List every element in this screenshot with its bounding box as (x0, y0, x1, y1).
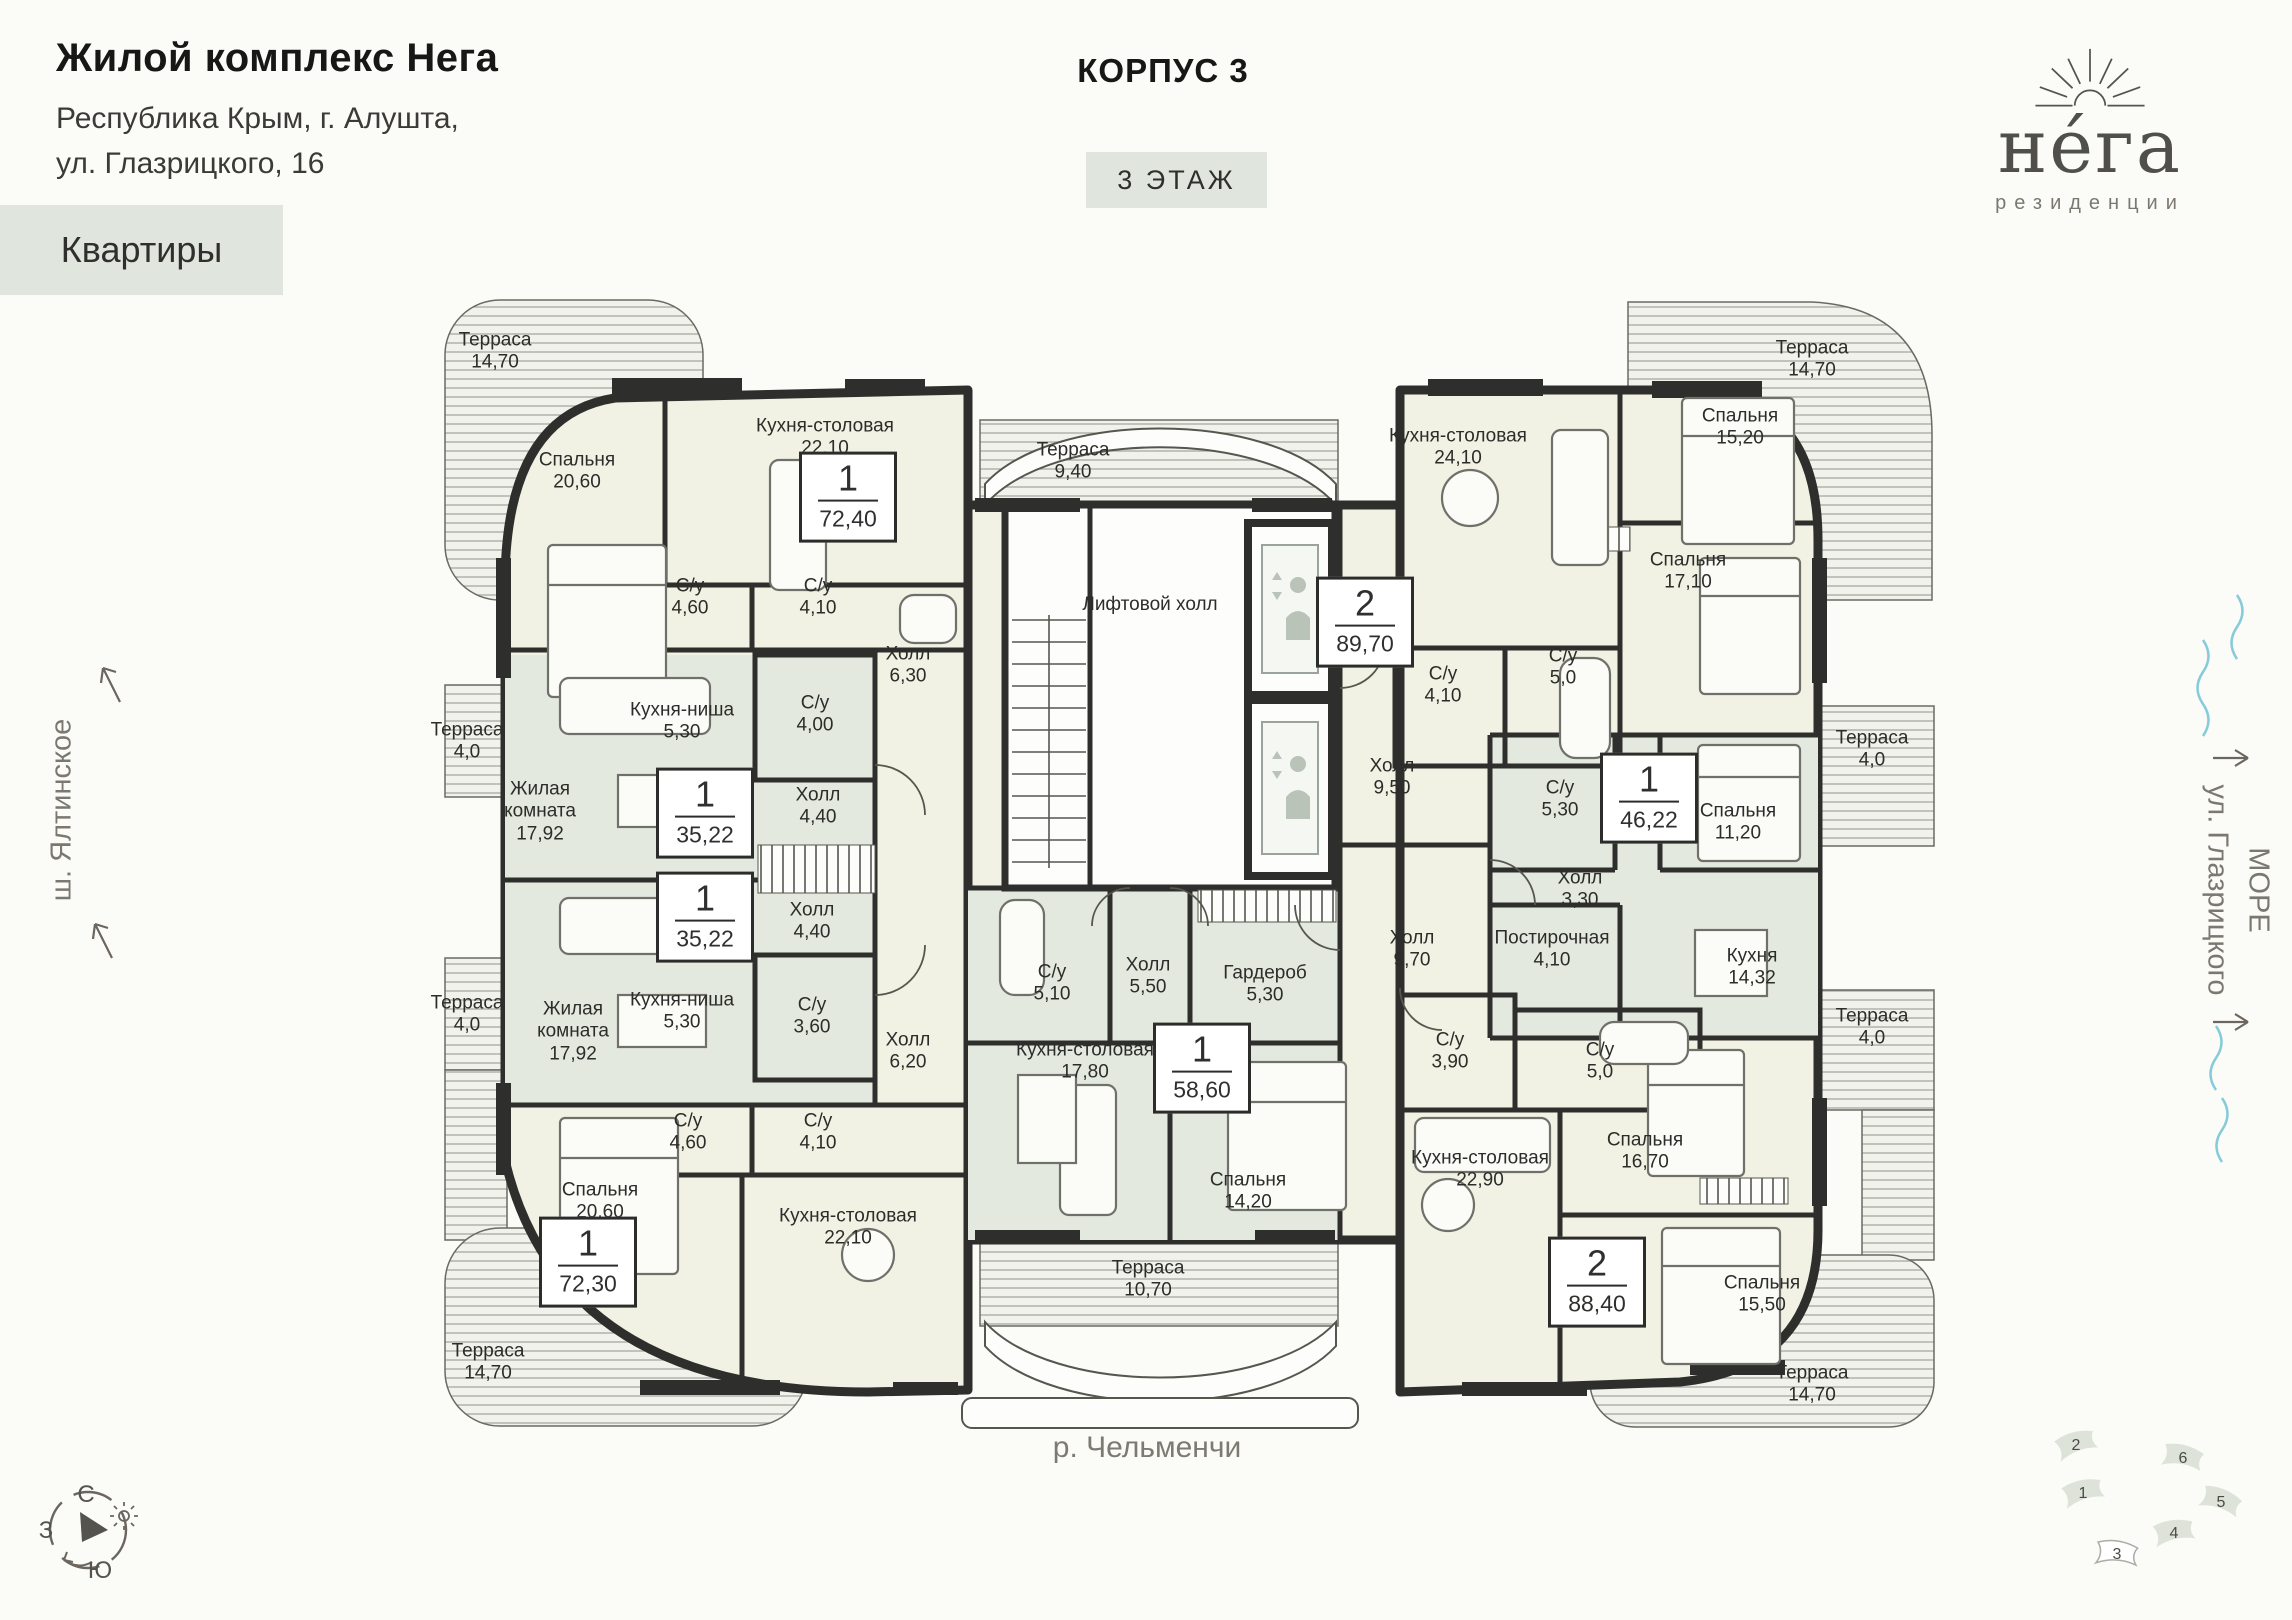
stair-elevator-core (1005, 505, 1335, 888)
room-label: Спальня15,50 (1724, 1273, 1800, 1318)
apartment-badge[interactable]: 172,40 (799, 452, 897, 543)
svg-text:2: 2 (2072, 1437, 2081, 1454)
room-label: Холл5,50 (1126, 955, 1171, 1000)
room-label: Терраса9,40 (1037, 440, 1110, 485)
floorplan-page: { "header": { "title": "Жилой комплекс Н… (0, 0, 2292, 1620)
brand-logo: не́га резиденции (1940, 38, 2240, 215)
logo-name: не́га (1940, 110, 2240, 184)
apartments-tab[interactable]: Квартиры (0, 205, 283, 295)
room-label: Лифтовой холл (1082, 594, 1218, 616)
room-label: Холл9,50 (1370, 756, 1415, 801)
address-line2: ул. Глазрицкого, 16 (56, 141, 459, 186)
site-minimap: 2 6 1 5 4 3 (2053, 1426, 2244, 1567)
room-label: Спальня15,20 (1702, 406, 1778, 451)
room-label: Спальня16,70 (1607, 1130, 1683, 1175)
room-label: Холл6,20 (886, 1030, 931, 1075)
minimap-building-current[interactable]: 3 (2096, 1539, 2138, 1567)
room-label: Спальня14,20 (1210, 1170, 1286, 1215)
room-label: Кухня-столовая22,10 (779, 1206, 917, 1251)
room-label: Терраса4,0 (1836, 1006, 1909, 1051)
room-label: Терраса14,70 (452, 1341, 525, 1386)
room-label: Терраса4,0 (431, 720, 504, 765)
sunburst-icon (2015, 38, 2165, 110)
apartment-badge[interactable]: 146,22 (1600, 753, 1698, 844)
room-label: С/у3,90 (1432, 1030, 1469, 1075)
room-label: Кухня-ниша5,30 (630, 990, 734, 1035)
apartment-badge[interactable]: 288,40 (1548, 1237, 1646, 1328)
room-label: Терраса14,70 (1776, 338, 1849, 383)
room-label: С/у4,10 (800, 1111, 837, 1156)
room-label: Терраса10,70 (1112, 1258, 1185, 1303)
compass-west: З (39, 1517, 54, 1544)
room-label: Терраса4,0 (1836, 728, 1909, 773)
sea-label: МОРЕ (2238, 784, 2279, 995)
address-line1: Республика Крым, г. Алушта, (56, 96, 459, 141)
room-label: Терраса14,70 (459, 330, 532, 375)
river-label: р. Чельменчи (1053, 1431, 1241, 1465)
room-label: Спальня20,60 (539, 450, 615, 495)
room-label: Терраса14,70 (1776, 1363, 1849, 1408)
room-label: Холл6,30 (886, 644, 931, 689)
apartment-badge[interactable]: 289,70 (1316, 577, 1414, 668)
floor-selector[interactable]: 3 ЭТАЖ (1086, 152, 1267, 208)
room-label: С/у4,10 (800, 576, 837, 621)
minimap-building[interactable]: 2 (2053, 1426, 2098, 1461)
road-label: ш. Ялтинское (46, 719, 79, 902)
room-label: Гардероб5,30 (1223, 963, 1307, 1008)
room-label: Спальня11,20 (1700, 801, 1776, 846)
address: Республика Крым, г. Алушта, ул. Глазрицк… (56, 96, 459, 186)
apartment-badge[interactable]: 135,22 (656, 768, 754, 859)
compass-icon: С З Ю (39, 1481, 138, 1584)
room-label: С/у3,60 (794, 995, 831, 1040)
room-label: Холл4,40 (790, 900, 835, 945)
room-label: Холл3,30 (1558, 868, 1603, 913)
svg-text:4: 4 (2170, 1525, 2179, 1542)
room-label: С/у4,10 (1425, 664, 1462, 709)
room-label: Жилая комната17,92 (505, 998, 641, 1065)
room-label: Спальня17,10 (1650, 550, 1726, 595)
room-label: Кухня-столовая22,90 (1411, 1148, 1549, 1193)
room-label: Жилая комната17,92 (472, 778, 608, 845)
room-label: Кухня-столовая17,80 (1016, 1040, 1154, 1085)
room-label: С/у5,10 (1034, 962, 1071, 1007)
svg-text:5: 5 (2217, 1494, 2226, 1511)
compass-south: Ю (88, 1557, 112, 1584)
logo-subtitle: резиденции (1940, 192, 2240, 215)
room-label: Холл9,70 (1390, 928, 1435, 973)
room-label: Постирочная4,10 (1494, 928, 1609, 973)
minimap-building[interactable]: 4 (2152, 1517, 2196, 1548)
street-label: ул. Глазрицкого (2197, 784, 2238, 995)
minimap-building[interactable]: 5 (2198, 1483, 2244, 1519)
floor-plan-drawing: С З Ю 2 6 1 5 4 3 (0, 0, 2292, 1620)
minimap-building[interactable]: 1 (2061, 1475, 2106, 1509)
room-label: С/у5,0 (1586, 1040, 1615, 1085)
svg-text:3: 3 (2113, 1546, 2122, 1563)
room-label: С/у4,60 (672, 576, 709, 621)
room-label: Кухня-ниша5,30 (630, 700, 734, 745)
room-label: Холл4,40 (796, 785, 841, 830)
svg-text:1: 1 (2079, 1485, 2088, 1502)
page-title: Жилой комплекс Нега (56, 36, 498, 81)
room-label: Терраса4,0 (431, 993, 504, 1038)
compass-north: С (77, 1481, 94, 1508)
room-label: С/у5,0 (1549, 646, 1578, 691)
room-label: С/у4,60 (670, 1111, 707, 1156)
room-label: Кухня-столовая24,10 (1389, 426, 1527, 471)
apartment-badge[interactable]: 172,30 (539, 1217, 637, 1308)
apartment-badge[interactable]: 135,22 (656, 872, 754, 963)
minimap-building[interactable]: 6 (2161, 1441, 2205, 1473)
apartment-badge[interactable]: 158,60 (1153, 1023, 1251, 1114)
compass-needle (80, 1512, 108, 1542)
building-title: КОРПУС 3 (1077, 52, 1248, 90)
room-label: С/у5,30 (1542, 778, 1579, 823)
sea-street-label: МОРЕ ул. Глазрицкого (2197, 784, 2278, 995)
room-label: Кухня14,32 (1727, 946, 1778, 991)
svg-text:6: 6 (2179, 1450, 2188, 1467)
room-label: С/у4,00 (797, 693, 834, 738)
